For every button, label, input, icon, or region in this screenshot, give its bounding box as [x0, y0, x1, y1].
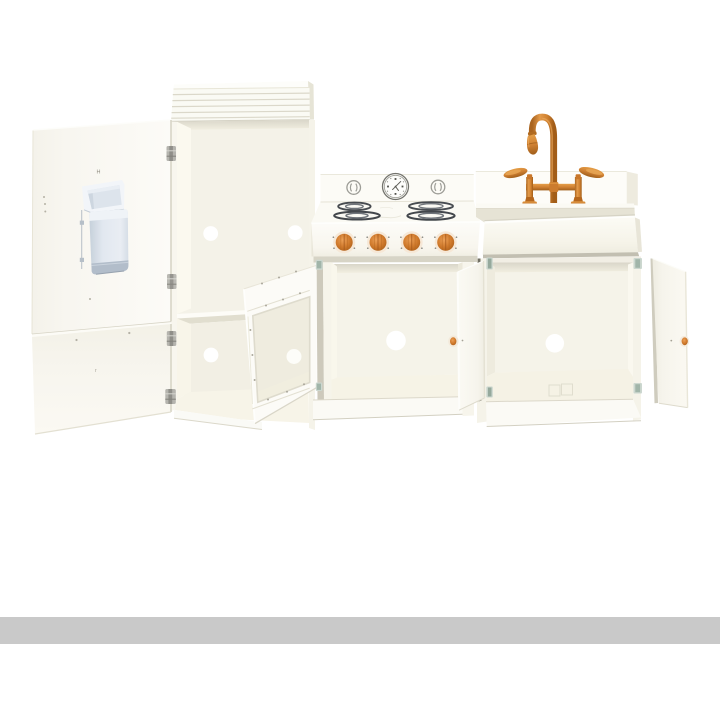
svg-text:H: H: [97, 170, 101, 176]
